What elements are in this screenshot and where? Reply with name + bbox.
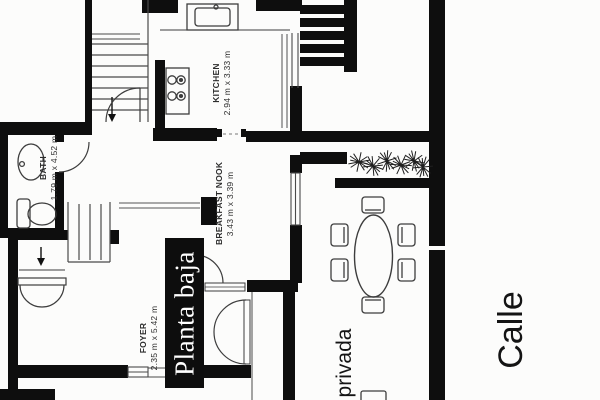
terrace-sliding-door (291, 173, 300, 225)
street-label-privada: privada (332, 318, 358, 400)
kitchen-sink-icon (187, 4, 238, 30)
floor-plan: KITCHEN 2.94 m x 3.33 m BREAKFAST NOOK 3… (0, 0, 600, 400)
room-label-breakfast-nook: BREAKFAST NOOK 3.43 m x 3.39 m (213, 163, 237, 245)
room-name: FOYER (138, 298, 149, 378)
room-dimensions: 3.43 m x 3.39 m (225, 163, 236, 245)
stair-window (92, 34, 140, 39)
room-name: BREAKFAST NOOK (214, 163, 225, 245)
plan-title: Planta baja (165, 238, 204, 388)
room-label-kitchen: KITCHEN 2.94 m x 3.33 m (210, 48, 234, 118)
closet-bifold-doors (18, 270, 66, 307)
down-arrow-icon (37, 247, 45, 266)
landing-steps (68, 202, 110, 262)
open-boundary-line (119, 203, 200, 208)
entry-double-doors (205, 283, 250, 364)
room-dimensions: 1.79 m x 4.52 m (49, 134, 60, 202)
room-dimensions: 2.94 m x 3.33 m (222, 48, 233, 118)
stove-icon (166, 68, 189, 114)
plan-title-box: Planta baja (165, 238, 204, 388)
room-name: KITCHEN (211, 48, 222, 118)
toilet-icon (17, 199, 56, 228)
room-label-bath: BATH 1.79 m x 4.52 m (37, 134, 61, 202)
street-label-calle: Calle (491, 290, 531, 370)
bath-door-arc (59, 142, 89, 172)
dining-table-icon (355, 215, 393, 297)
kitchen-window (292, 33, 298, 88)
room-label-foyer: FOYER 2.35 m x 5.42 m (137, 298, 161, 378)
room-dimensions: 2.35 m x 5.42 m (149, 298, 160, 378)
hedge-planter-icon (347, 147, 434, 180)
room-name: BATH (38, 134, 49, 202)
